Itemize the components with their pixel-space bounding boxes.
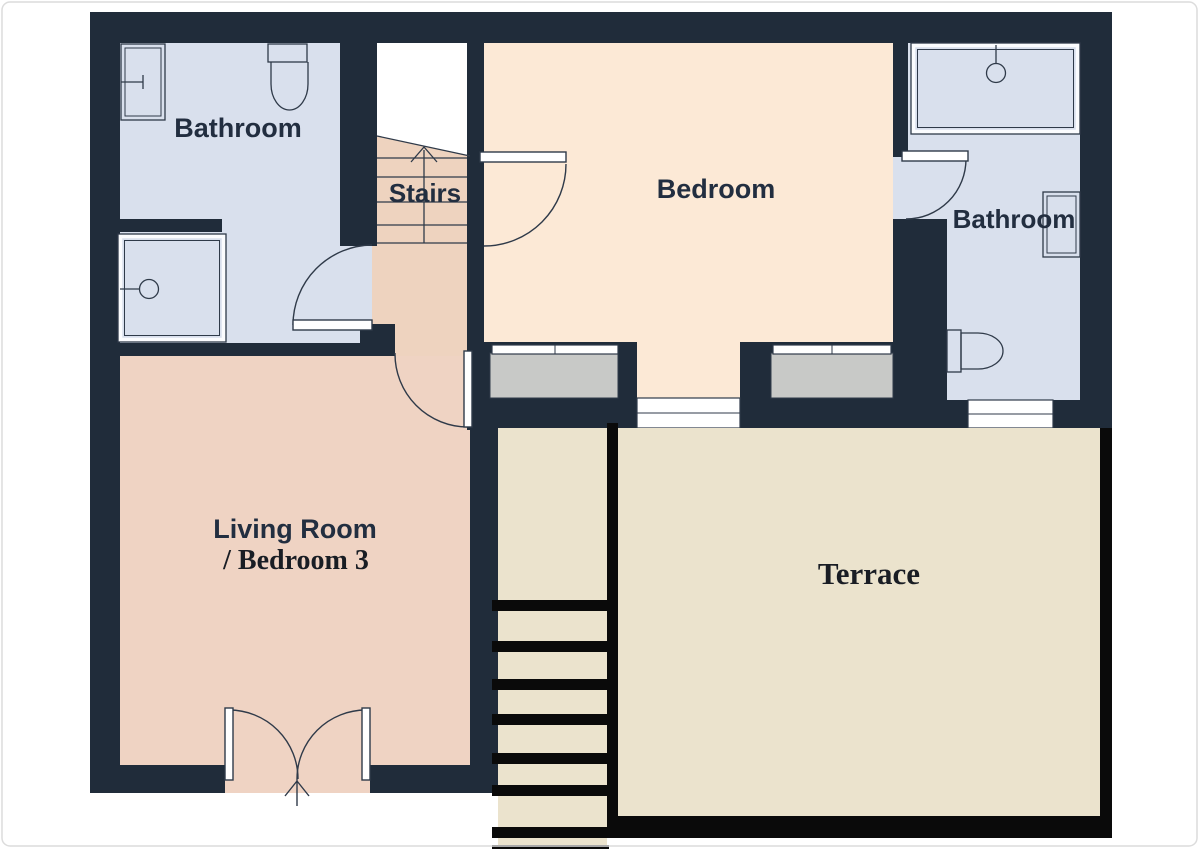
terrace-right-border: [1100, 428, 1112, 838]
label-bathroom-2: Bathroom: [953, 204, 1076, 234]
door-leaf: [362, 708, 370, 780]
step-bar: [492, 641, 609, 652]
terrace-bottom-border: [607, 816, 1112, 838]
step-bar: [492, 600, 609, 611]
label-terrace: Terrace: [818, 556, 920, 591]
wall-bedroom-bathroom2-upper: [893, 43, 908, 157]
external-stairs-floor: [498, 793, 607, 849]
terrace-divider-wall: [607, 423, 618, 838]
wall-stairs-bedroom: [467, 43, 484, 342]
label-bathroom-1: Bathroom: [174, 113, 302, 143]
window-sill-left: [490, 353, 618, 398]
step-bar: [492, 714, 609, 725]
wall-bathroom1-partition: [120, 219, 222, 232]
door-leaf: [293, 320, 372, 330]
window-sill-right: [771, 353, 893, 398]
label-stairs: Stairs: [389, 178, 461, 208]
wall-bathroom1-bottom: [120, 343, 395, 356]
floorplan-canvas: Bathroom Stairs Bedroom Bathroom Living …: [0, 0, 1200, 849]
stairs-landing-floor: [377, 43, 467, 155]
label-living-room-line2: / Bedroom 3: [222, 545, 369, 576]
door-leaf: [225, 708, 233, 780]
door-leaf: [480, 152, 566, 162]
door-leaf: [464, 351, 472, 427]
terrace-doorway-floor: [637, 342, 740, 399]
bathroom-2-doorway-floor: [893, 157, 908, 219]
label-bedroom: Bedroom: [657, 174, 776, 204]
step-bar: [492, 679, 609, 690]
label-living-room-line1: Living Room: [213, 514, 377, 544]
step-bar: [492, 785, 609, 796]
wall-bathroom1-stairs: [340, 43, 377, 246]
bathroom-1-floor: [120, 43, 372, 343]
step-bar: [492, 753, 609, 764]
step-bar: [492, 827, 609, 838]
door-leaf: [902, 151, 968, 161]
outdoor-area: [492, 423, 1112, 849]
